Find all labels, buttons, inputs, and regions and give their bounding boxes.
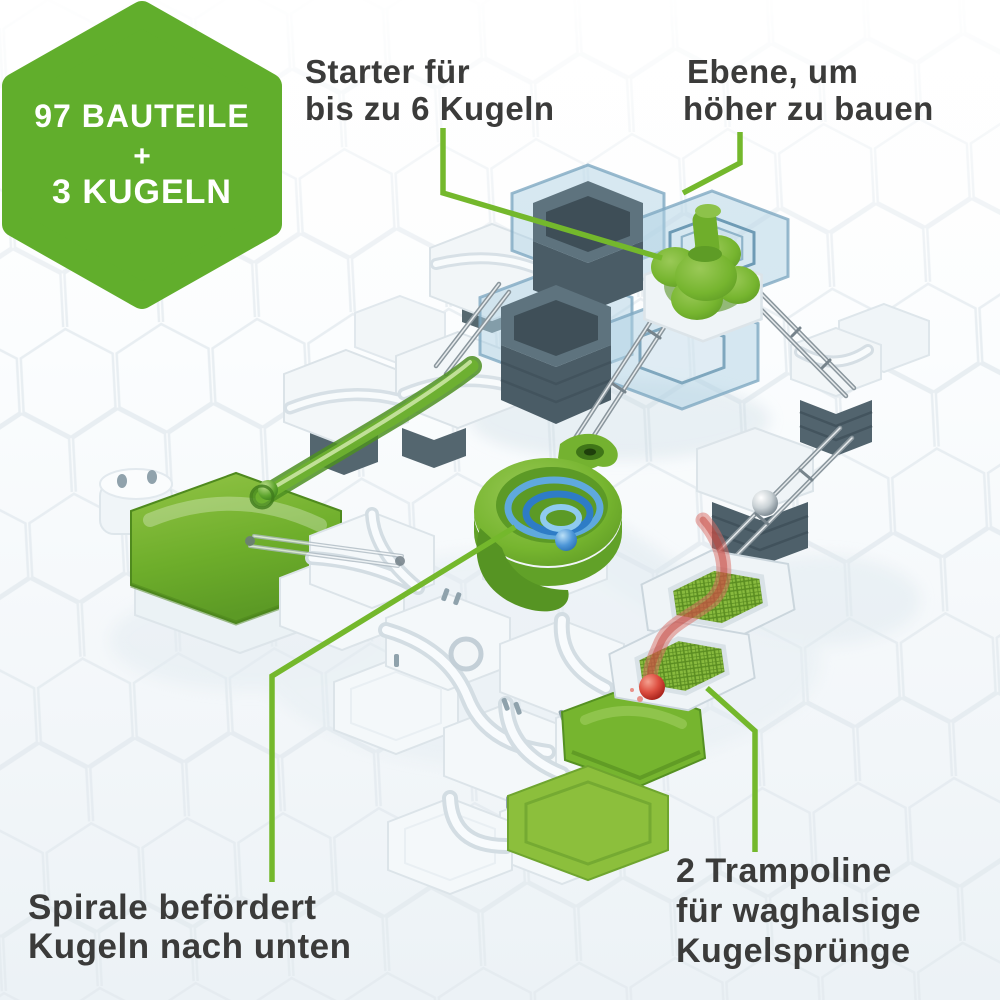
callout-level-line2: höher zu bauen xyxy=(683,90,934,127)
callout-level-line1: Ebene, um xyxy=(687,53,858,90)
red-splash xyxy=(637,696,643,702)
callout-starter-line2: bis zu 6 Kugeln xyxy=(305,90,555,127)
callout-trampoline-line3: Kugelsprünge xyxy=(676,932,911,970)
peg-hole xyxy=(147,470,157,484)
callout-spiral-line1: Spirale befördert xyxy=(28,888,317,927)
badge-balls-count: 3 KUGELN xyxy=(52,173,232,211)
badge-parts-count: 97 BAUTEILE xyxy=(34,98,249,134)
callout-starter-line1: Starter für xyxy=(305,53,470,90)
callout-trampoline-line2: für waghalsige xyxy=(676,892,921,930)
circle-track-mark xyxy=(451,639,481,669)
scene-svg: 97 BAUTEILE + 3 KUGELN Starter für bis z… xyxy=(0,0,1000,1000)
callout-spiral-line2: Kugeln nach unten xyxy=(28,927,352,966)
red-ball xyxy=(639,674,665,700)
silver-ball xyxy=(752,490,778,516)
badge-plus: + xyxy=(133,140,151,173)
product-annotation-image: 97 BAUTEILE + 3 KUGELN Starter für bis z… xyxy=(0,0,1000,1000)
counts-badge: 97 BAUTEILE + 3 KUGELN xyxy=(15,14,269,296)
red-splash xyxy=(630,688,634,692)
green-ball xyxy=(258,480,278,500)
callout-trampoline-line1: 2 Trampoline xyxy=(676,852,892,890)
blue-ball xyxy=(555,529,577,551)
slate-tower-2 xyxy=(501,285,611,424)
peg-hole xyxy=(117,474,127,488)
